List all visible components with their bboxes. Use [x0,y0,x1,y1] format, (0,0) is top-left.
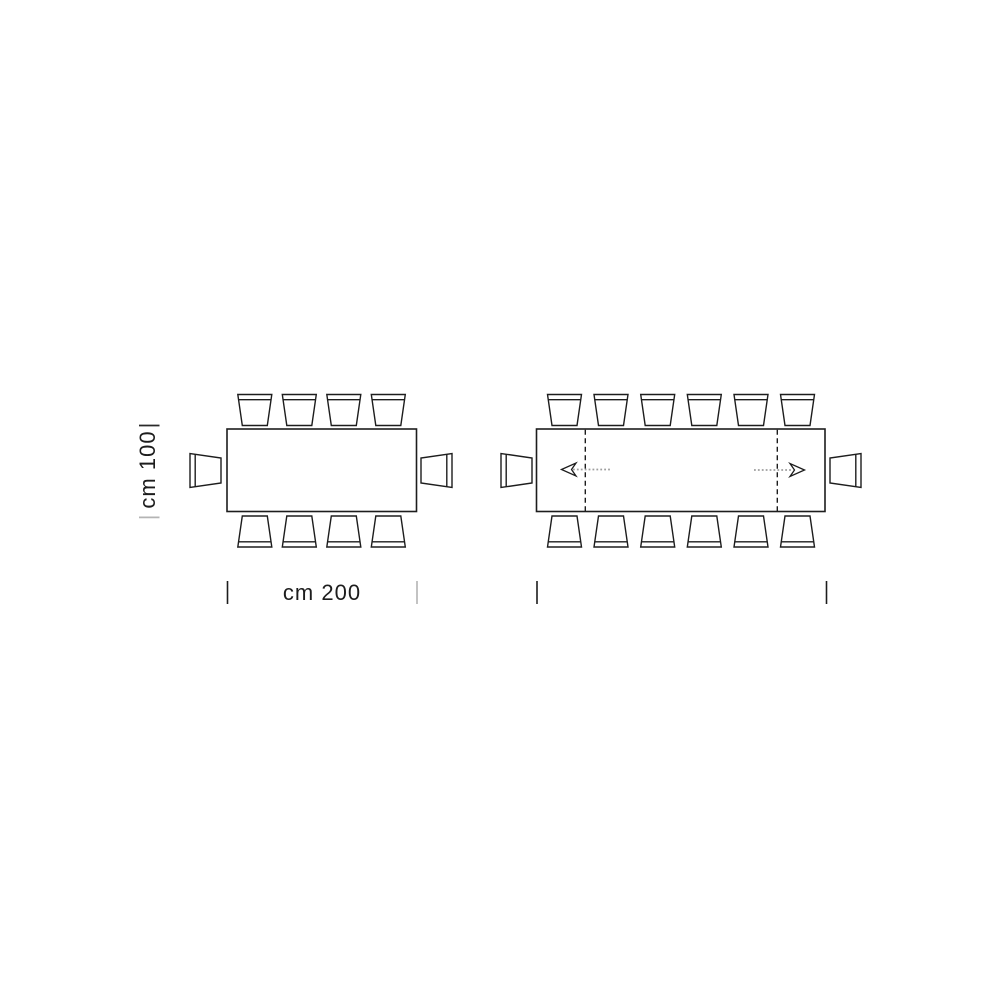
width-dimension-label: cm 200 [227,581,417,605]
chair-icon [501,454,532,488]
chair-icon [641,516,675,547]
chair-icon [371,516,405,547]
chair-icon [327,395,361,426]
chair-icon [238,516,272,547]
chair-icon [371,395,405,426]
chair-icon [687,516,721,547]
dimension-tick-glyph: | [135,514,160,521]
chair-icon [190,454,221,488]
chair-icon [734,516,768,547]
extended-table-diagram [501,395,861,605]
chair-icon [238,395,272,426]
chair-icon [282,395,316,426]
chair-icon [594,516,628,547]
chair-icon [781,516,815,547]
table-surface-closed [227,429,417,512]
floor-plan-canvas: |cm 100| cm 200 [0,0,1000,1000]
chair-icon [548,395,582,426]
chair-icon [830,454,861,488]
height-dimension-text: cm 100 [135,430,160,508]
dimension-tick-glyph: | [135,422,160,429]
chair-icon [282,516,316,547]
chair-icon [594,395,628,426]
height-dimension-label: |cm 100| [136,422,160,521]
chair-icon [548,516,582,547]
chair-icon [781,395,815,426]
chair-icon [641,395,675,426]
closed-table-diagram [190,395,452,605]
chair-icon [421,454,452,488]
chair-icon [687,395,721,426]
chair-icon [327,516,361,547]
chair-icon [734,395,768,426]
